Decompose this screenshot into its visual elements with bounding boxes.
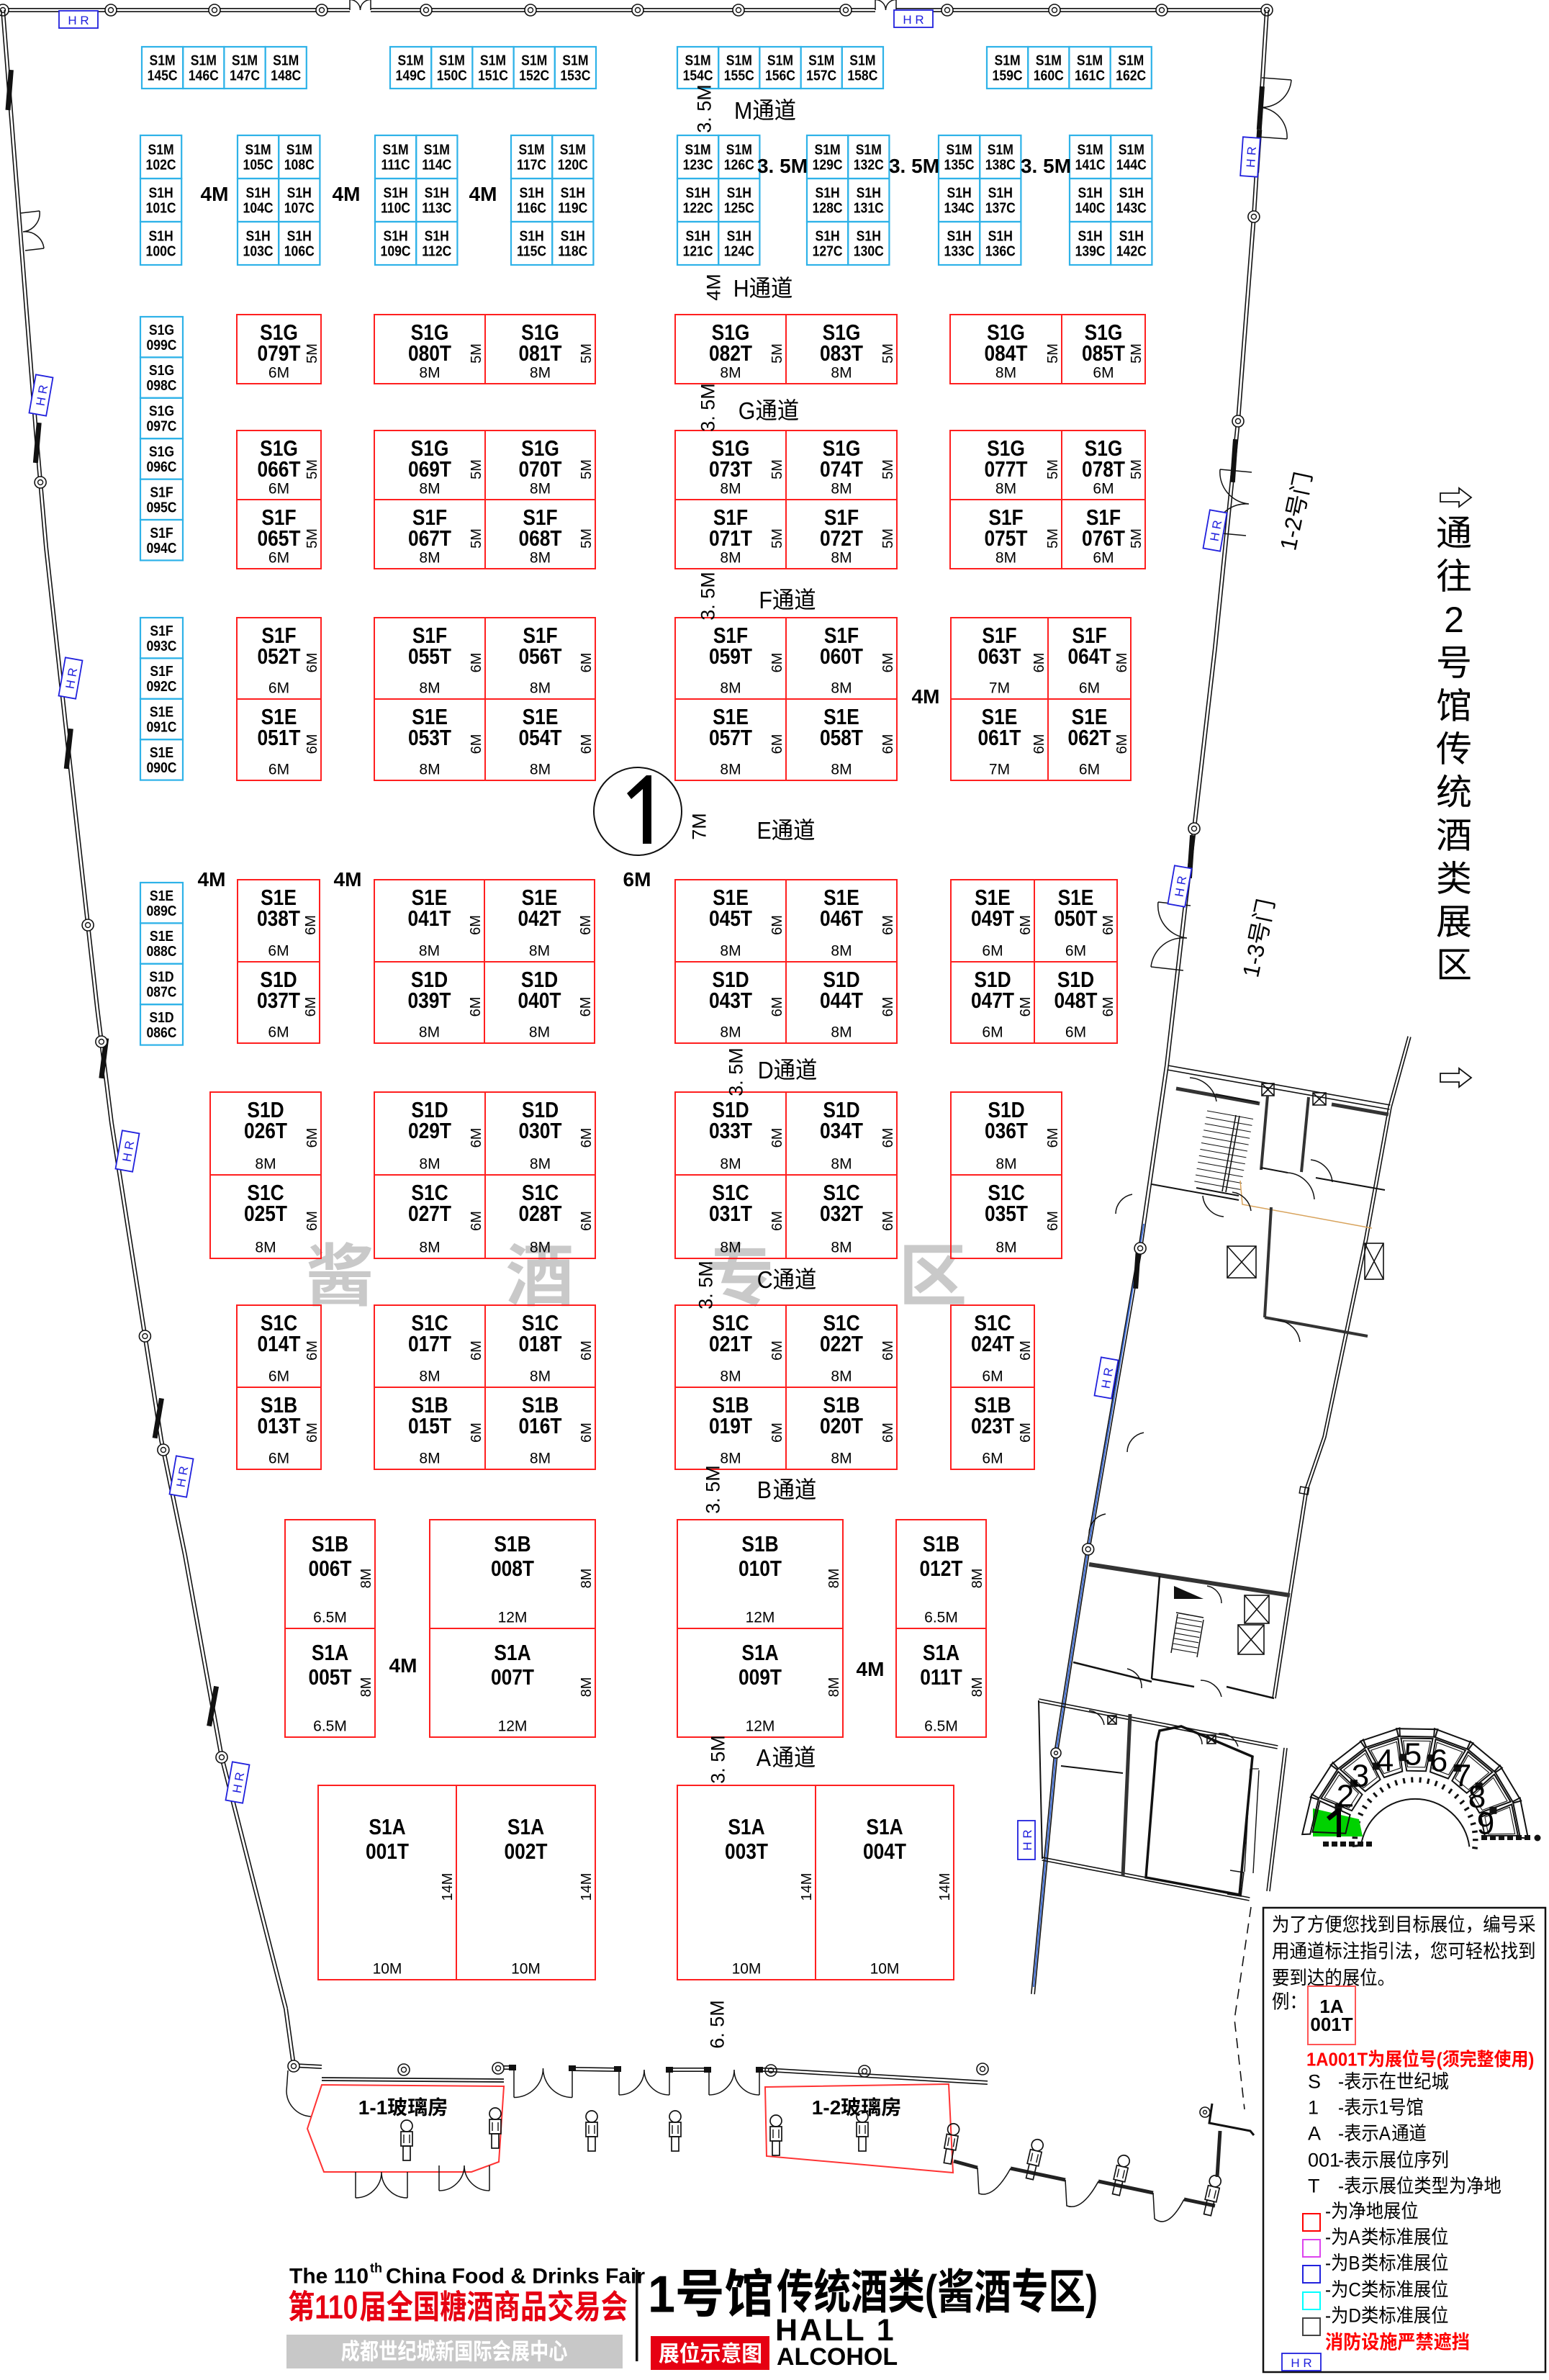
svg-text:5M: 5M [1129, 459, 1144, 479]
svg-text:2: 2 [1444, 600, 1464, 640]
svg-text:152C: 152C [519, 68, 549, 84]
svg-text:8M: 8M [530, 1240, 551, 1256]
svg-text:153C: 153C [560, 68, 590, 84]
svg-text:048T: 048T [1054, 988, 1097, 1013]
svg-text:10M: 10M [732, 1961, 762, 1978]
svg-text:132C: 132C [854, 157, 884, 173]
svg-text:8M: 8M [419, 1024, 440, 1041]
svg-text:G: G [739, 397, 756, 424]
svg-text:057T: 057T [709, 726, 752, 750]
svg-text:102C: 102C [146, 157, 176, 173]
svg-text:106C: 106C [284, 243, 315, 259]
svg-text:089C: 089C [146, 903, 176, 919]
svg-text:8M: 8M [720, 550, 741, 567]
svg-text:118C: 118C [558, 243, 587, 259]
svg-text:8M: 8M [831, 680, 852, 697]
svg-text:S1F: S1F [150, 484, 173, 500]
svg-text:067T: 067T [408, 526, 451, 551]
svg-text:149C: 149C [396, 68, 426, 84]
svg-text:071T: 071T [709, 526, 752, 551]
svg-text:124C: 124C [724, 243, 754, 259]
svg-text:S1A: S1A [369, 1815, 405, 1839]
svg-text:6M: 6M [469, 1128, 484, 1148]
svg-text:S1M: S1M [849, 53, 875, 68]
svg-text:D: D [1348, 2305, 1361, 2326]
svg-text:052T: 052T [257, 644, 300, 669]
svg-text:056T: 056T [518, 644, 561, 669]
svg-text:6M: 6M [468, 915, 484, 935]
svg-text:S1H: S1H [425, 185, 449, 201]
svg-text:042T: 042T [518, 906, 561, 931]
svg-text:027T: 027T [408, 1202, 451, 1226]
svg-text:5M: 5M [1045, 528, 1061, 549]
svg-text:14M: 14M [937, 1873, 953, 1901]
svg-text:8M: 8M [419, 1451, 440, 1467]
svg-text:045T: 045T [709, 906, 752, 931]
svg-text:063T: 063T [977, 644, 1021, 669]
svg-text:8M: 8M [419, 365, 440, 382]
svg-text:8M: 8M [831, 481, 852, 497]
svg-text:142C: 142C [1116, 243, 1147, 259]
svg-text:135C: 135C [944, 157, 975, 173]
svg-text:S1A: S1A [728, 1815, 764, 1839]
svg-text:S1M: S1M [726, 53, 752, 68]
svg-text:110: 110 [315, 2289, 358, 2326]
svg-text:6. 5M: 6. 5M [707, 2000, 728, 2049]
svg-text:6M: 6M [769, 1128, 785, 1148]
svg-text:(: ( [925, 2265, 937, 2319]
svg-text:068T: 068T [518, 526, 561, 551]
svg-text:001: 001 [1308, 2150, 1340, 2171]
svg-text:091C: 091C [146, 719, 176, 735]
svg-text:8M: 8M [419, 1240, 440, 1256]
svg-text:8M: 8M [995, 1156, 1016, 1173]
svg-text:S1A: S1A [741, 1641, 778, 1665]
svg-text:6M: 6M [578, 997, 594, 1017]
svg-text:8M: 8M [720, 1369, 741, 1385]
svg-text:120C: 120C [558, 157, 588, 173]
svg-text:6M: 6M [304, 1423, 320, 1443]
svg-text:8M: 8M [826, 1677, 842, 1698]
svg-text:HALL 1: HALL 1 [775, 2313, 896, 2348]
svg-text:12M: 12M [498, 1610, 528, 1626]
svg-text:6M: 6M [880, 915, 896, 935]
svg-text:T: T [1308, 2176, 1320, 2197]
svg-text:S1M: S1M [1077, 53, 1103, 68]
svg-text:5M: 5M [304, 343, 320, 364]
svg-text:S1M: S1M [995, 53, 1021, 68]
svg-text:6M: 6M [769, 1340, 785, 1361]
svg-text:8M: 8M [831, 550, 852, 567]
svg-text:S: S [1308, 2071, 1321, 2093]
svg-text:S1D: S1D [149, 969, 173, 985]
svg-text:161C: 161C [1075, 68, 1105, 84]
svg-text:S1H: S1H [519, 228, 543, 244]
svg-text:4: 4 [1376, 1744, 1394, 1779]
svg-text:101C: 101C [146, 200, 176, 216]
svg-text:S1M: S1M [519, 142, 545, 158]
svg-text:6M: 6M [268, 762, 289, 778]
svg-text:070T: 070T [518, 457, 561, 482]
svg-text:6M: 6M [880, 734, 896, 754]
svg-text:10M: 10M [373, 1961, 402, 1978]
svg-text:S1M: S1M [685, 142, 711, 158]
svg-text:China Food & Drinks Fair: China Food & Drinks Fair [386, 2265, 645, 2289]
svg-text:-: - [1325, 2201, 1331, 2222]
svg-text:8M: 8M [831, 1369, 852, 1385]
svg-text:6.5M: 6.5M [313, 1610, 347, 1626]
svg-text:085T: 085T [1082, 341, 1125, 366]
svg-text:087C: 087C [146, 984, 176, 1000]
svg-text:6M: 6M [769, 1211, 785, 1231]
svg-text:6M: 6M [1093, 481, 1114, 497]
svg-text:6: 6 [1430, 1744, 1448, 1779]
svg-text:5M: 5M [579, 528, 595, 549]
svg-text:-: - [1325, 2305, 1331, 2326]
svg-text:050T: 050T [1054, 906, 1097, 931]
svg-text:4M: 4M [333, 183, 361, 205]
svg-text:S1H: S1H [287, 185, 312, 201]
svg-text:150C: 150C [437, 68, 467, 84]
svg-text:110C: 110C [381, 200, 410, 216]
svg-text:A: A [1308, 2123, 1321, 2145]
svg-text:S1A: S1A [494, 1641, 530, 1665]
svg-text:8M: 8M [530, 481, 551, 497]
svg-text:S1B: S1B [312, 1532, 348, 1556]
svg-text:H R: H R [1244, 146, 1259, 168]
svg-text:041T: 041T [407, 906, 451, 931]
svg-text:6M: 6M [769, 915, 785, 935]
svg-text:8M: 8M [826, 1569, 842, 1589]
svg-text:A: A [757, 1744, 772, 1771]
svg-text:6M: 6M [1101, 915, 1116, 935]
svg-text:072T: 072T [820, 526, 863, 551]
svg-text:3: 3 [1352, 1759, 1369, 1794]
svg-text:6M: 6M [579, 1128, 595, 1148]
svg-text:007T: 007T [491, 1665, 534, 1690]
svg-text:6M: 6M [304, 1340, 320, 1361]
svg-text:062T: 062T [1067, 726, 1111, 750]
svg-text:054T: 054T [518, 726, 561, 750]
svg-text:6M: 6M [304, 1128, 320, 1148]
svg-text:075T: 075T [984, 526, 1027, 551]
svg-text:-: - [1338, 2071, 1344, 2092]
svg-text:S1M: S1M [815, 142, 841, 158]
svg-text:051T: 051T [257, 726, 300, 750]
svg-text:6M: 6M [1045, 1128, 1061, 1148]
svg-text:-: - [1325, 2253, 1331, 2273]
svg-text:8M: 8M [529, 1024, 550, 1041]
svg-text:3. 5M: 3. 5M [697, 572, 719, 621]
svg-text:S1D: S1D [149, 1009, 173, 1025]
svg-text:S1B: S1B [741, 1532, 778, 1556]
svg-text:6M: 6M [304, 653, 320, 673]
svg-text:6M: 6M [469, 1423, 484, 1443]
svg-text:011T: 011T [920, 1665, 962, 1690]
svg-text:4M: 4M [201, 183, 229, 205]
svg-text:036T: 036T [985, 1119, 1028, 1143]
svg-text:8M: 8M [358, 1569, 374, 1589]
svg-text:-: - [1325, 2279, 1331, 2300]
svg-text:10M: 10M [511, 1961, 541, 1978]
svg-text:8M: 8M [530, 1451, 551, 1467]
svg-text:8M: 8M [720, 762, 741, 778]
svg-text:S1H: S1H [988, 228, 1013, 244]
svg-text:022T: 022T [820, 1332, 863, 1356]
svg-text:S1M: S1M [191, 53, 217, 68]
svg-text:6M: 6M [579, 653, 595, 673]
svg-text:S1H: S1H [425, 228, 449, 244]
svg-text:8M: 8M [831, 1156, 852, 1173]
svg-text:8M: 8M [419, 481, 440, 497]
svg-text:S1M: S1M [245, 142, 271, 158]
svg-text:6M: 6M [1031, 734, 1047, 754]
svg-text:S1A: S1A [312, 1641, 348, 1665]
svg-text:S1H: S1H [1119, 228, 1144, 244]
svg-text:107C: 107C [284, 200, 315, 216]
svg-text:104C: 104C [243, 200, 274, 216]
svg-text:073T: 073T [709, 457, 752, 482]
svg-text:8M: 8M [530, 680, 551, 697]
svg-text:040T: 040T [518, 988, 561, 1013]
svg-text:8M: 8M [255, 1240, 276, 1256]
svg-text:013T: 013T [257, 1414, 300, 1438]
svg-text:S1E: S1E [150, 928, 173, 944]
svg-text:S1E: S1E [150, 888, 173, 903]
svg-text:6M: 6M [982, 1369, 1003, 1385]
svg-text:154C: 154C [683, 68, 713, 84]
svg-text:6M: 6M [468, 997, 484, 1017]
svg-text:4M: 4M [912, 685, 940, 708]
svg-text:4M: 4M [389, 1654, 417, 1677]
svg-text:6M: 6M [982, 1024, 1003, 1041]
svg-text:6M: 6M [268, 481, 289, 497]
svg-text:S1G: S1G [149, 403, 174, 419]
svg-text:077T: 077T [984, 457, 1027, 482]
svg-text:6M: 6M [268, 1369, 289, 1385]
svg-text:035T: 035T [985, 1202, 1028, 1226]
svg-text:S1M: S1M [1036, 53, 1062, 68]
svg-text:8M: 8M [720, 680, 741, 697]
svg-text:160C: 160C [1034, 68, 1064, 84]
svg-text:6M: 6M [769, 653, 785, 673]
svg-text:-: - [1338, 2123, 1344, 2144]
svg-text:6M: 6M [1114, 734, 1130, 754]
svg-text:5M: 5M [769, 459, 785, 479]
svg-text:5M: 5M [880, 528, 896, 549]
svg-text:4M: 4M [198, 868, 226, 891]
svg-text:097C: 097C [146, 418, 176, 434]
svg-text:143C: 143C [1116, 200, 1147, 216]
svg-text:157C: 157C [806, 68, 836, 84]
svg-text:6.5M: 6.5M [924, 1718, 958, 1735]
svg-text:A: A [1379, 2123, 1391, 2144]
svg-text:058T: 058T [820, 726, 863, 750]
svg-text:6M: 6M [268, 1451, 289, 1467]
svg-text:145C: 145C [148, 68, 178, 84]
svg-text:S1A: S1A [923, 1641, 959, 1665]
svg-text:S1H: S1H [685, 185, 710, 201]
svg-text:8M: 8M [995, 550, 1016, 567]
svg-text:5M: 5M [769, 343, 785, 364]
svg-text:S1G: S1G [149, 443, 174, 459]
svg-text:088C: 088C [146, 943, 176, 959]
svg-text:043T: 043T [709, 988, 752, 1013]
svg-text:S1H: S1H [815, 228, 839, 244]
svg-text:6M: 6M [579, 1340, 595, 1361]
svg-text:108C: 108C [284, 157, 315, 173]
svg-text:S1H: S1H [383, 185, 407, 201]
svg-text:6M: 6M [1101, 997, 1116, 1017]
svg-text:6M: 6M [1018, 915, 1034, 935]
svg-text:S1G: S1G [149, 322, 174, 338]
svg-text:S1M: S1M [726, 142, 752, 158]
svg-text:140C: 140C [1075, 200, 1106, 216]
svg-text:049T: 049T [971, 906, 1014, 931]
svg-text:12M: 12M [498, 1718, 528, 1735]
svg-text:6M: 6M [1093, 550, 1114, 567]
svg-text:6M: 6M [1079, 680, 1100, 697]
svg-text:086C: 086C [146, 1024, 176, 1040]
svg-text:3. 5M: 3. 5M [1021, 155, 1071, 177]
svg-text:S1H: S1H [857, 228, 881, 244]
svg-text:026T: 026T [244, 1119, 287, 1143]
svg-text:8M: 8M [720, 1451, 741, 1467]
svg-text:5M: 5M [880, 343, 896, 364]
svg-text:8M: 8M [419, 1369, 440, 1385]
svg-text:082T: 082T [709, 341, 752, 366]
svg-text:6M: 6M [880, 1340, 896, 1361]
svg-text:8M: 8M [529, 943, 550, 960]
svg-text:055T: 055T [408, 644, 451, 669]
svg-text:S1M: S1M [1119, 142, 1144, 158]
svg-text:6M: 6M [880, 1128, 896, 1148]
svg-text:S1M: S1M [480, 53, 506, 68]
svg-text:159C: 159C [993, 68, 1023, 84]
svg-text:4M: 4M [469, 183, 497, 205]
svg-text:8M: 8M [720, 943, 741, 960]
svg-text:6M: 6M [469, 734, 484, 754]
svg-text:8M: 8M [831, 943, 852, 960]
svg-text:8M: 8M [831, 1024, 852, 1041]
svg-text:6M: 6M [268, 365, 289, 382]
svg-text:8M: 8M [831, 365, 852, 382]
svg-text:095C: 095C [146, 499, 176, 515]
svg-text:The 110: The 110 [289, 2265, 369, 2289]
svg-text:5M: 5M [1129, 528, 1144, 549]
svg-text:111C: 111C [381, 157, 410, 173]
svg-text:S1M: S1M [232, 53, 258, 68]
svg-text:053T: 053T [408, 726, 451, 750]
svg-text:6M: 6M [1065, 943, 1086, 960]
svg-text:S1M: S1M [947, 142, 972, 158]
svg-text:6M: 6M [579, 1211, 595, 1231]
svg-text:061T: 061T [977, 726, 1021, 750]
svg-text:037T: 037T [257, 988, 300, 1013]
svg-text:th: th [370, 2260, 382, 2275]
svg-text:6M: 6M [1018, 1340, 1034, 1361]
svg-text:H: H [733, 275, 749, 302]
svg-text:1-2: 1-2 [812, 2096, 841, 2119]
svg-text:103C: 103C [243, 243, 274, 259]
svg-text:019T: 019T [709, 1414, 752, 1438]
svg-text:S1B: S1B [923, 1532, 959, 1556]
svg-text:066T: 066T [257, 457, 300, 482]
svg-text:3. 5M: 3. 5M [695, 1261, 717, 1310]
svg-text:094C: 094C [146, 540, 176, 556]
svg-text:129C: 129C [813, 157, 843, 173]
svg-text:083T: 083T [820, 341, 863, 366]
svg-text:020T: 020T [820, 1414, 863, 1438]
svg-text:1: 1 [1379, 2097, 1389, 2118]
svg-text:S1H: S1H [245, 185, 270, 201]
svg-text:5M: 5M [1129, 343, 1144, 364]
svg-text:10M: 10M [870, 1961, 900, 1978]
svg-text:8M: 8M [530, 365, 551, 382]
svg-text:6M: 6M [303, 997, 319, 1017]
svg-text:H R: H R [68, 14, 89, 27]
svg-text:127C: 127C [813, 243, 843, 259]
svg-text:8M: 8M [720, 1024, 741, 1041]
svg-text:S1M: S1M [148, 142, 174, 158]
svg-text:023T: 023T [971, 1414, 1014, 1438]
svg-text:8M: 8M [530, 1369, 551, 1385]
svg-text:S1H: S1H [1119, 185, 1144, 201]
svg-text:6M: 6M [469, 653, 484, 673]
svg-text:8M: 8M [419, 550, 440, 567]
svg-text:6M: 6M [880, 1423, 896, 1443]
svg-text:S1M: S1M [1118, 53, 1144, 68]
svg-text:015T: 015T [408, 1414, 451, 1438]
svg-text:S1G: S1G [149, 362, 174, 378]
svg-text:5M: 5M [469, 459, 484, 479]
svg-text:S1H: S1H [815, 185, 839, 201]
svg-text:B: B [1348, 2253, 1360, 2273]
svg-text:014T: 014T [257, 1332, 300, 1356]
svg-text:M: M [734, 97, 752, 124]
svg-text:S1M: S1M [685, 53, 711, 68]
svg-text:6M: 6M [880, 997, 896, 1017]
svg-text:H R: H R [1021, 1829, 1034, 1850]
svg-text:6M: 6M [579, 1423, 595, 1443]
svg-text:S1H: S1H [727, 228, 751, 244]
svg-text:S1M: S1M [150, 53, 176, 68]
svg-text:S1H: S1H [519, 185, 543, 201]
svg-text:S1M: S1M [273, 53, 299, 68]
svg-text:146C: 146C [189, 68, 219, 84]
svg-text:6M: 6M [268, 1024, 289, 1041]
svg-text:D: D [758, 1057, 774, 1083]
svg-text:141C: 141C [1075, 157, 1106, 173]
svg-text:8M: 8M [720, 365, 741, 382]
svg-text:130C: 130C [854, 243, 884, 259]
svg-text:S1H: S1H [1078, 185, 1102, 201]
svg-text:4M: 4M [857, 1658, 885, 1680]
svg-text:14M: 14M [799, 1873, 815, 1901]
svg-text:8M: 8M [831, 762, 852, 778]
svg-text:8M: 8M [831, 1451, 852, 1467]
svg-text:156C: 156C [765, 68, 795, 84]
svg-text:060T: 060T [820, 644, 863, 669]
svg-text:137C: 137C [985, 200, 1016, 216]
svg-text:8M: 8M [720, 481, 741, 497]
svg-text:147C: 147C [230, 68, 260, 84]
svg-text:6M: 6M [880, 1211, 896, 1231]
svg-text:5M: 5M [579, 343, 595, 364]
svg-text:S1M: S1M [1078, 142, 1103, 158]
svg-text:C: C [1348, 2279, 1361, 2300]
svg-text:S1H: S1H [1078, 228, 1102, 244]
